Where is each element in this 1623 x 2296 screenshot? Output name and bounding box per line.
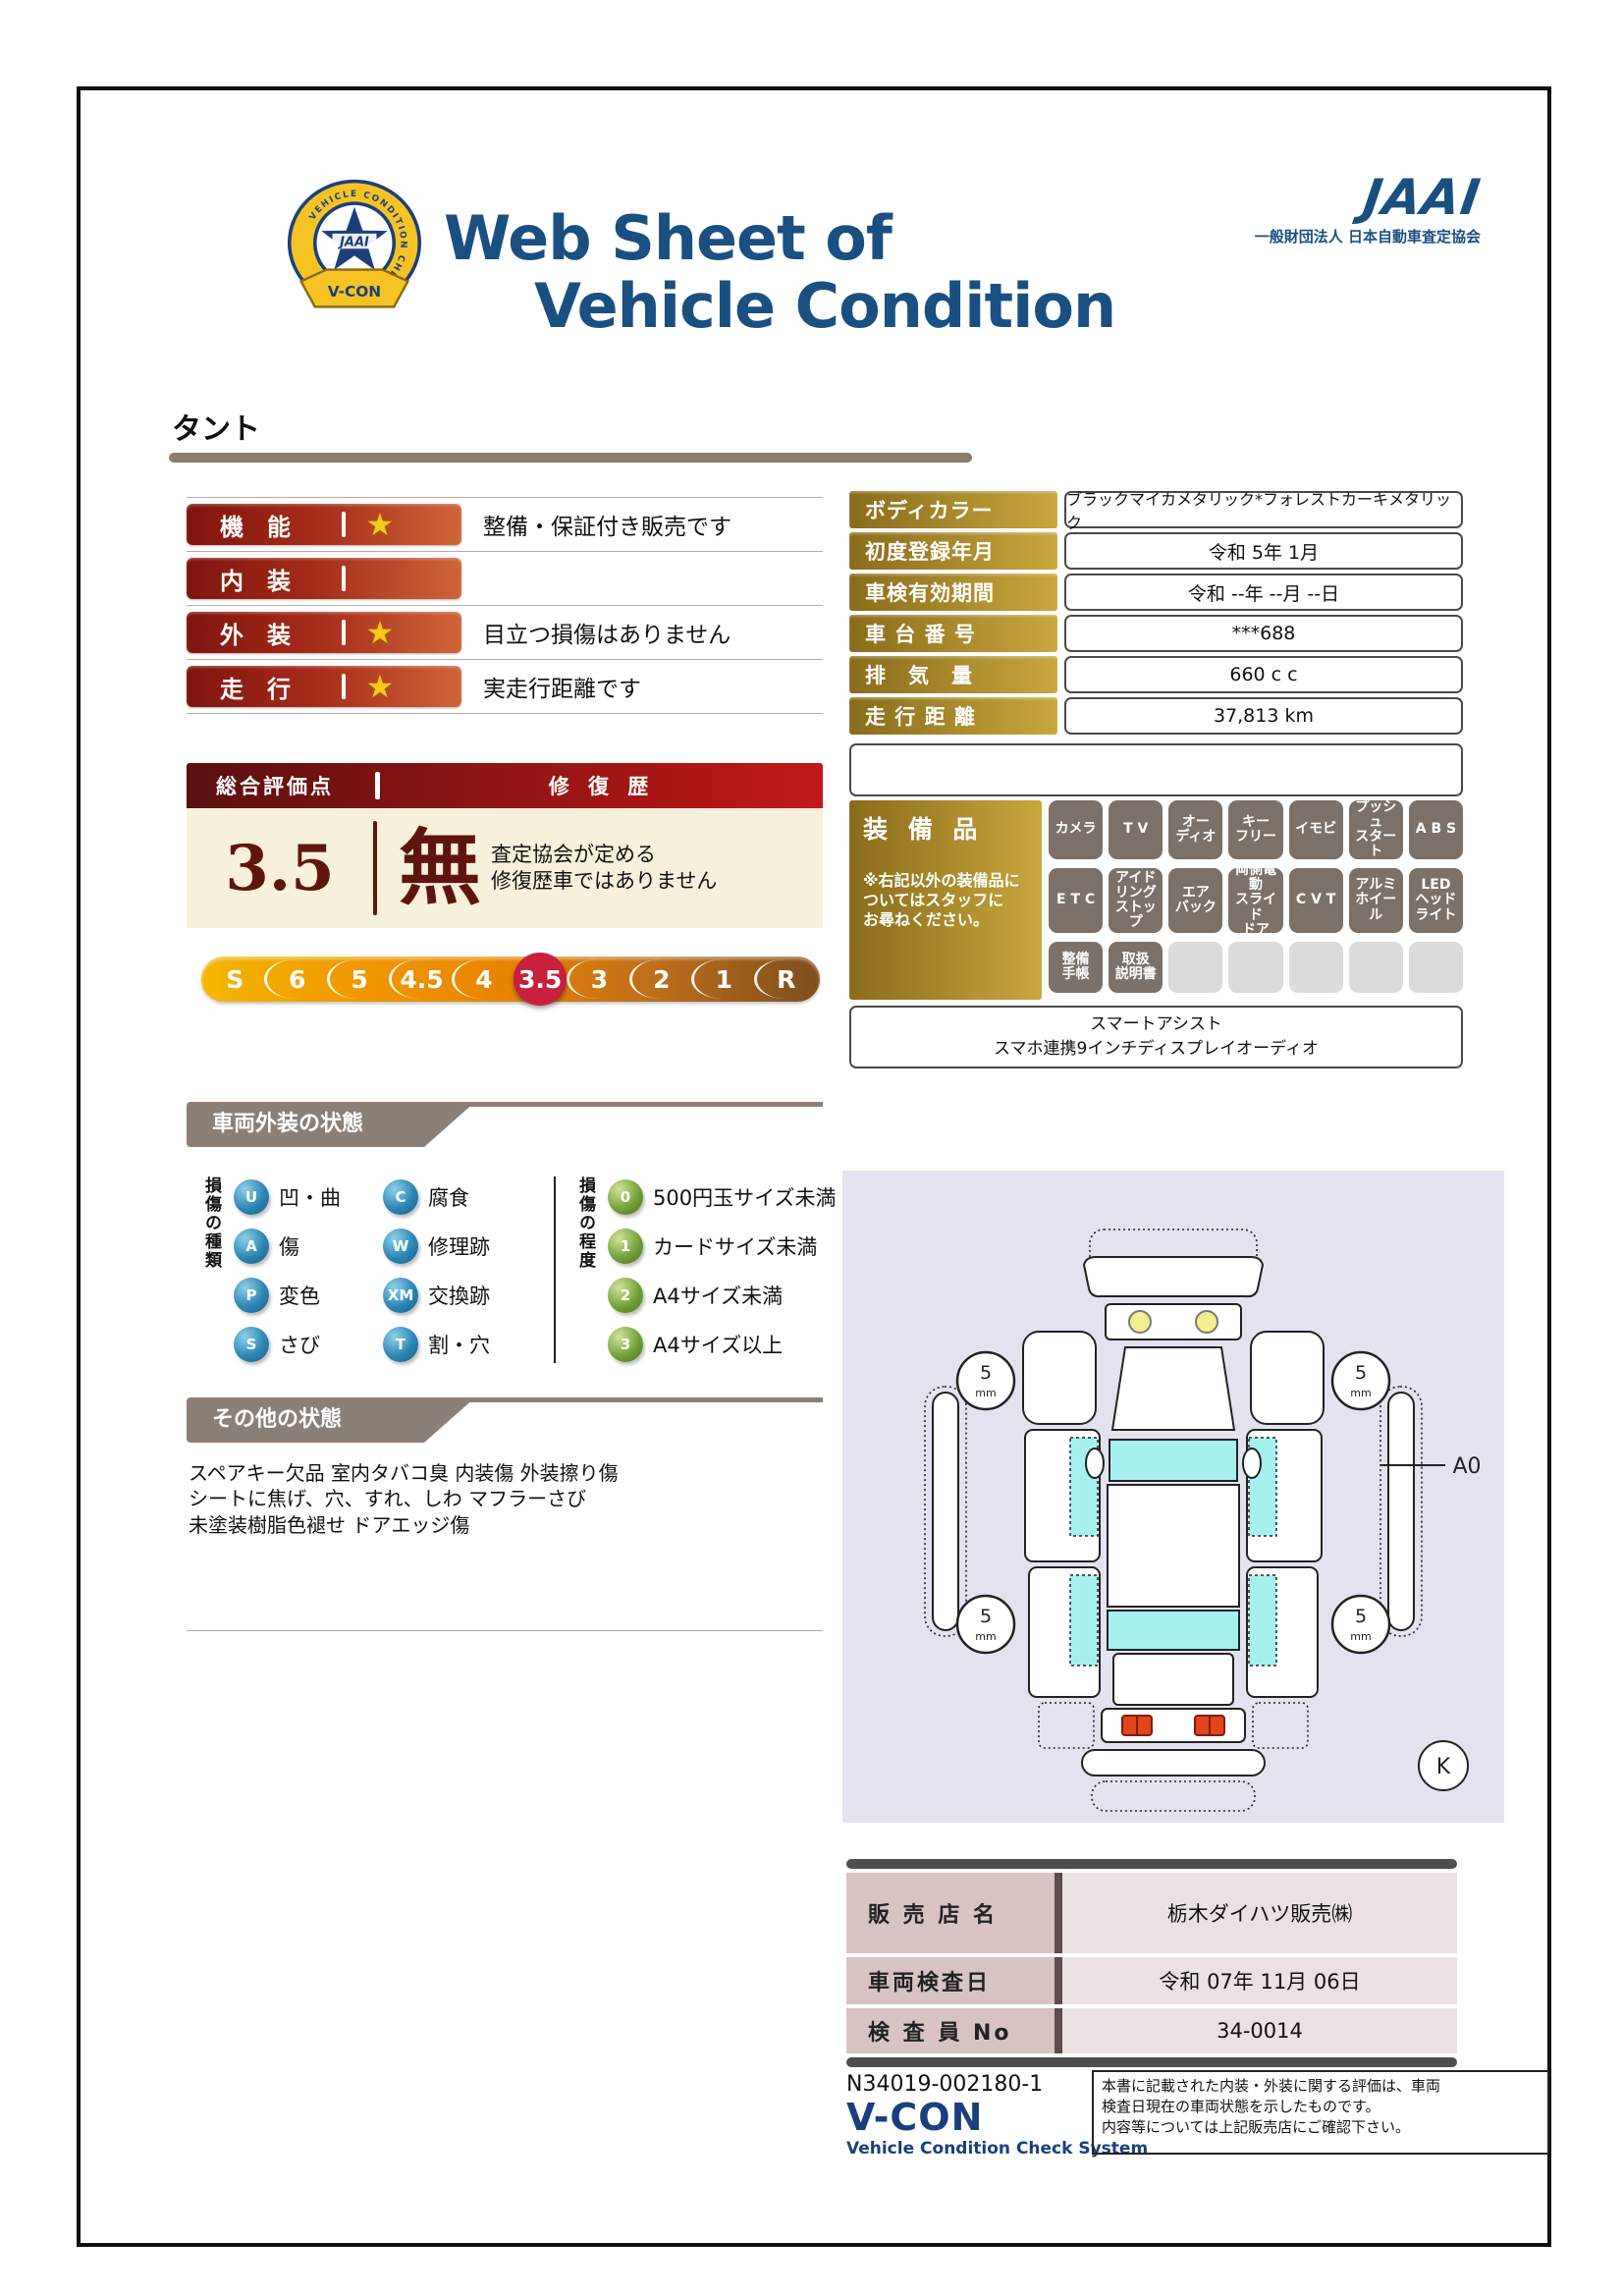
info-value-mileage: 37,813 km <box>1064 697 1463 735</box>
rating-note: 実走行距離です <box>483 670 641 703</box>
empty-value-box <box>849 743 1463 796</box>
damage-code-xm-icon: XM <box>383 1278 418 1313</box>
table-row: 検 査 員 No 34-0014 <box>846 2008 1457 2053</box>
rating-row-exterior: 外 装 目立つ損傷はありません <box>187 605 823 659</box>
dealer-table: 販 売 店 名 栃木ダイハツ販売㈱ 車両検査日 令和 07年 11月 06日 検… <box>846 1859 1457 2067</box>
right-headlight-icon <box>1196 1311 1217 1333</box>
equipment-badge-empty <box>1289 942 1343 993</box>
table-row: 車 台 番 号 ***688 <box>849 615 1463 652</box>
damage-marker-a0: A0 <box>1452 1454 1481 1479</box>
info-label-mileage: 走 行 距 離 <box>849 697 1057 735</box>
damage-type-item: A 傷 <box>234 1222 383 1271</box>
table-row: 走 行 距 離 37,813 km <box>849 697 1463 735</box>
divider-bar <box>169 453 972 463</box>
damage-type-item: W 修理跡 <box>383 1222 540 1271</box>
damage-degree-item: 2 A4サイズ未満 <box>608 1271 836 1320</box>
damage-type-list: U 凹・曲 C 腐食 A 傷 W 修理跡 P 変色 XM 交換跡 <box>234 1173 540 1369</box>
tire-depth-value: 5 <box>1355 1362 1367 1384</box>
equipment-badge-empty <box>1409 942 1463 993</box>
damage-code-u-icon: U <box>234 1179 269 1215</box>
equipment-badge-keyfree: キー フリー <box>1228 800 1282 859</box>
degree-1-icon: 1 <box>608 1229 643 1264</box>
tire-depth-unit: mm <box>1350 1387 1371 1399</box>
other-condition-line: シートに焦げ、穴、すれ、しわ マフラーさび <box>189 1486 650 1511</box>
info-value-displacement: 660 c c <box>1064 656 1463 693</box>
right-rear-window <box>1249 1575 1276 1666</box>
damage-degree-item: 3 A4サイズ以上 <box>608 1320 836 1369</box>
rear-bumper <box>1082 1750 1265 1776</box>
badge-ribbon-text: V-CON <box>328 283 381 301</box>
overall-score-block: 総合評価点 修 復 歴 3.5 無 査定協会が定める 修復歴車ではありません <box>187 763 823 928</box>
dealer-value-inspector-no: 34-0014 <box>1062 2008 1457 2053</box>
dealer-label-inspector-no: 検 査 員 No <box>846 2008 1062 2053</box>
dealer-value-shop: 栃木ダイハツ販売㈱ <box>1062 1873 1457 1953</box>
equipment-badge-cvt: C V T <box>1289 868 1343 933</box>
jaai-logo-block: JAAI 一般財団法人 日本自動車査定協会 <box>1217 173 1481 246</box>
scale-item-4-5: 4.5 <box>389 959 451 999</box>
equipment-badge-ledheadlight: LED ヘッド ライト <box>1409 868 1463 933</box>
right-mirror <box>1243 1449 1261 1478</box>
scale-item-4: 4 <box>452 959 514 999</box>
equipment-badge-manual: 取扱 説明書 <box>1109 942 1163 993</box>
rating-label: 外 装 <box>220 616 336 650</box>
car-damage-diagram: 5 mm 5 mm 5 mm 5 mm A0 K <box>842 1171 1504 1823</box>
star-icon <box>346 506 414 543</box>
key-mark: K <box>1436 1755 1451 1779</box>
hood <box>1112 1347 1234 1430</box>
rear-gate <box>1113 1654 1233 1705</box>
jaai-wordmark: JAAI <box>1361 173 1485 222</box>
scale-item-5: 5 <box>327 959 389 999</box>
right-sill <box>1388 1393 1414 1630</box>
right-quarter-outline <box>1253 1703 1308 1748</box>
section-rule <box>187 1630 823 1631</box>
car-unfolded-view: 5 mm 5 mm 5 mm 5 mm A0 K <box>842 1171 1504 1823</box>
extra-equipment-line2: スマホ連携9インチディスプレイオーディオ <box>994 1037 1319 1063</box>
equipment-badge-airbag: エア バック <box>1168 868 1222 933</box>
rating-row-mileage: 走 行 実走行距離です <box>187 659 823 714</box>
equipment-note: ※右記以外の装備品に ついてはスタッフに お尋ねください。 <box>863 871 1042 930</box>
rating-label: 走 行 <box>220 670 336 704</box>
equipment-badge-camera: カメラ <box>1049 800 1103 859</box>
dealer-label-shop: 販 売 店 名 <box>846 1873 1062 1953</box>
damage-type-item: S さび <box>234 1320 383 1369</box>
damage-code-c-icon: C <box>383 1179 418 1215</box>
info-label-body-color: ボディカラー <box>849 491 1057 528</box>
legend-divider <box>554 1176 556 1363</box>
overall-score-title: 総合評価点 <box>216 771 363 800</box>
other-condition-text: スペアキー欠品 室内タバコ臭 内装傷 外装擦り傷 シートに焦げ、穴、すれ、しわ … <box>189 1460 650 1538</box>
rating-pill: 内 装 <box>187 558 461 599</box>
equipment-badge-alloywheel: アルミ ホイール <box>1349 868 1403 933</box>
rating-rows: 機 能 整備・保証付き販売です 内 装 外 装 目立つ損傷はありません <box>187 497 823 714</box>
info-value-inspection-validity: 令和 --年 --月 --日 <box>1064 574 1463 611</box>
equipment-badge-powerslidedoor: 両側電動 スライド ドア <box>1228 868 1282 933</box>
rating-row-function: 機 能 整備・保証付き販売です <box>187 497 823 551</box>
rating-note: 目立つ損傷はありません <box>483 616 730 649</box>
equipment-badge-empty <box>1228 942 1282 993</box>
vehicle-info-table: ボディカラー ブラックマイカメタリック*フォレストカーキメタリック 初度登録年月… <box>849 491 1463 738</box>
table-row: 車検有効期間 令和 --年 --月 --日 <box>849 574 1463 611</box>
rating-note: 整備・保証付き販売です <box>483 508 731 541</box>
roof <box>1108 1485 1239 1607</box>
rear-window <box>1108 1611 1239 1650</box>
damage-type-item: C 腐食 <box>383 1173 540 1222</box>
rating-pill: 外 装 <box>187 612 461 653</box>
info-label-chassis-number: 車 台 番 号 <box>849 615 1057 652</box>
front-bumper <box>1084 1257 1263 1296</box>
repair-history-note: 査定協会が定める 修復歴車ではありません <box>491 842 717 896</box>
damage-degree-label: A4サイズ未満 <box>653 1281 783 1310</box>
tire-depth-unit: mm <box>975 1630 996 1643</box>
damage-code-t-icon: T <box>383 1327 418 1362</box>
info-value-body-color: ブラックマイカメタリック*フォレストカーキメタリック <box>1064 491 1463 528</box>
scale-item-r: R <box>754 959 816 999</box>
tire-depth-value: 5 <box>980 1606 992 1627</box>
rating-label: 機 能 <box>220 508 336 542</box>
damage-type-item: P 変色 <box>234 1271 383 1320</box>
left-rear-window <box>1070 1575 1098 1666</box>
scale-item-2: 2 <box>629 959 691 999</box>
tire-depth-unit: mm <box>975 1387 996 1399</box>
rear-bumper-outline <box>1092 1781 1255 1811</box>
degree-0-icon: 0 <box>608 1179 643 1215</box>
page-title: Web Sheet of Vehicle Condition <box>444 204 1115 341</box>
table-row: 販 売 店 名 栃木ダイハツ販売㈱ <box>846 1873 1457 1953</box>
other-condition-line: スペアキー欠品 室内タバコ臭 内装傷 外装擦り傷 <box>189 1460 650 1486</box>
damage-type-label: 傷 <box>279 1231 299 1261</box>
front-panel <box>1106 1304 1241 1339</box>
damage-type-label: 変色 <box>279 1281 320 1310</box>
left-mirror <box>1086 1449 1104 1478</box>
damage-degree-label: カードサイズ未満 <box>653 1231 817 1261</box>
banner-extension-line <box>442 1102 823 1107</box>
left-sill <box>933 1393 958 1630</box>
damage-type-item: T 割・穴 <box>383 1320 540 1369</box>
table-bottom-bar <box>846 2057 1457 2067</box>
damage-code-s-icon: S <box>234 1327 269 1362</box>
damage-code-p-icon: P <box>234 1278 269 1313</box>
equipment-badge-servicebook: 整備 手帳 <box>1049 942 1103 993</box>
equipment-panel: 装 備 品 ※右記以外の装備品に ついてはスタッフに お尋ねください。 <box>849 800 1042 1000</box>
table-top-bar <box>846 1859 1457 1869</box>
banner-extension-line <box>442 1397 823 1402</box>
score-scale: S 6 5 4.5 4 3.5 3 2 1 R <box>201 957 820 1002</box>
extra-equipment-box: スマートアシスト スマホ連携9インチディスプレイオーディオ <box>849 1006 1463 1068</box>
info-label-inspection-validity: 車検有効期間 <box>849 574 1057 611</box>
damage-code-a-icon: A <box>234 1229 269 1264</box>
star-icon <box>346 614 414 651</box>
dealer-value-inspection-date: 令和 07年 11月 06日 <box>1062 1957 1457 2004</box>
repair-note-line1: 査定協会が定める <box>491 842 717 868</box>
tire-depth-value: 5 <box>980 1362 992 1384</box>
left-quarter-outline <box>1039 1703 1094 1748</box>
damage-type-label: さび <box>279 1330 320 1359</box>
extra-equipment-line1: スマートアシスト <box>1090 1012 1222 1038</box>
damage-type-item: U 凹・曲 <box>234 1173 383 1222</box>
damage-type-axis-label: 損傷の種類 <box>199 1176 224 1270</box>
damage-degree-label: 500円玉サイズ未満 <box>653 1182 836 1212</box>
jaai-organization: 一般財団法人 日本自動車査定協会 <box>1217 226 1481 246</box>
left-headlight-icon <box>1129 1311 1151 1333</box>
other-condition-line: 未塗装樹脂色褪せ ドアエッジ傷 <box>189 1512 650 1538</box>
damage-degree-item: 0 500円玉サイズ未満 <box>608 1173 836 1222</box>
dealer-label-inspection-date: 車両検査日 <box>846 1957 1062 2004</box>
equipment-badge-audio: オー ディオ <box>1168 800 1222 859</box>
scale-item-3: 3 <box>567 959 628 999</box>
left-front-fender <box>1023 1332 1096 1424</box>
equipment-badge-etc: E T C <box>1049 868 1103 933</box>
info-label-displacement: 排 気 量 <box>849 656 1057 693</box>
tire-depth-unit: mm <box>1350 1630 1371 1643</box>
equipment-title: 装 備 品 <box>863 810 1042 846</box>
badge-jaai-text: JAAI <box>337 235 369 249</box>
overall-body: 3.5 無 査定協会が定める 修復歴車ではありません <box>187 808 823 928</box>
right-front-fender <box>1251 1332 1324 1424</box>
vcon-wordmark: V-CON <box>846 2096 983 2139</box>
damage-degree-list: 0 500円玉サイズ未満 1 カードサイズ未満 2 A4サイズ未満 3 A4サイ… <box>608 1173 836 1369</box>
damage-type-label: 修理跡 <box>428 1231 490 1261</box>
damage-type-label: 凹・曲 <box>279 1182 341 1212</box>
rating-row-interior: 内 装 <box>187 551 823 605</box>
title-line1: Web Sheet of <box>444 204 1115 272</box>
damage-degree-item: 1 カードサイズ未満 <box>608 1222 836 1271</box>
repair-history-title: 修 復 歴 <box>380 771 823 800</box>
tire-depth-value: 5 <box>1355 1606 1367 1627</box>
degree-2-icon: 2 <box>608 1278 643 1313</box>
scale-item-6: 6 <box>264 959 326 999</box>
damage-degree-label: A4サイズ以上 <box>653 1330 783 1359</box>
disclaimer-box: 本書に記載された内装・外装に関する評価は、車両 検査日現在の車両状態を示したもの… <box>1092 2070 1549 2155</box>
damage-code-w-icon: W <box>383 1229 418 1264</box>
star-icon <box>346 668 414 705</box>
info-value-chassis-number: ***688 <box>1064 615 1463 652</box>
windshield <box>1109 1440 1237 1481</box>
rating-pill: 走 行 <box>187 666 461 707</box>
damage-degree-axis-label: 損傷の程度 <box>573 1176 598 1270</box>
equipment-badge-pushstart: プッシュ スタート <box>1349 800 1403 859</box>
table-row: 排 気 量 660 c c <box>849 656 1463 693</box>
scale-item-1: 1 <box>691 959 753 999</box>
table-row: 初度登録年月 令和 5年 1月 <box>849 532 1463 570</box>
damage-type-label: 交換跡 <box>428 1281 490 1310</box>
body-divider <box>373 821 377 915</box>
vcon-badge-logo: VEHICLE CONDITION CHECK SYSTEM JAAI V-CO… <box>285 179 424 328</box>
equipment-badge-abs: A B S <box>1409 800 1463 859</box>
rating-pill: 機 能 <box>187 504 461 545</box>
title-line2: Vehicle Condition <box>534 272 1115 340</box>
damage-legend: 損傷の種類 U 凹・曲 C 腐食 A 傷 W 修理跡 P 変色 <box>199 1173 836 1369</box>
vehicle-condition-sheet: VEHICLE CONDITION CHECK SYSTEM JAAI V-CO… <box>0 0 1623 2296</box>
equipment-badge-immobilizer: イモビ <box>1289 800 1343 859</box>
equipment-badge-empty <box>1168 942 1222 993</box>
overall-score-value: 3.5 <box>187 832 373 905</box>
info-label-first-registration: 初度登録年月 <box>849 532 1057 570</box>
damage-type-label: 割・穴 <box>428 1330 490 1359</box>
damage-type-item: XM 交換跡 <box>383 1271 540 1320</box>
overall-header: 総合評価点 修 復 歴 <box>187 763 823 808</box>
equipment-badge-empty <box>1349 942 1403 993</box>
equipment-grid: カメラ T V オー ディオ キー フリー イモビ プッシュ スタート A B … <box>1049 800 1463 993</box>
equipment-badge-idlingstop: アイド リング ストップ <box>1109 868 1163 933</box>
document-number: N34019-002180-1 <box>846 2072 1043 2097</box>
equipment-badge-tv: T V <box>1109 800 1163 859</box>
repair-history-mark: 無 <box>399 827 481 909</box>
info-value-first-registration: 令和 5年 1月 <box>1064 532 1463 570</box>
damage-type-label: 腐食 <box>428 1182 469 1212</box>
table-row: 車両検査日 令和 07年 11月 06日 <box>846 1957 1457 2004</box>
degree-3-icon: 3 <box>608 1327 643 1362</box>
scale-item-s: S <box>205 959 264 999</box>
table-row: ボディカラー ブラックマイカメタリック*フォレストカーキメタリック <box>849 491 1463 528</box>
vehicle-name: タント <box>172 405 260 448</box>
rating-label: 内 装 <box>220 562 336 596</box>
scale-item-3-5-selected: 3.5 <box>514 953 567 1006</box>
repair-note-line2: 修復歴車ではありません <box>491 868 717 895</box>
